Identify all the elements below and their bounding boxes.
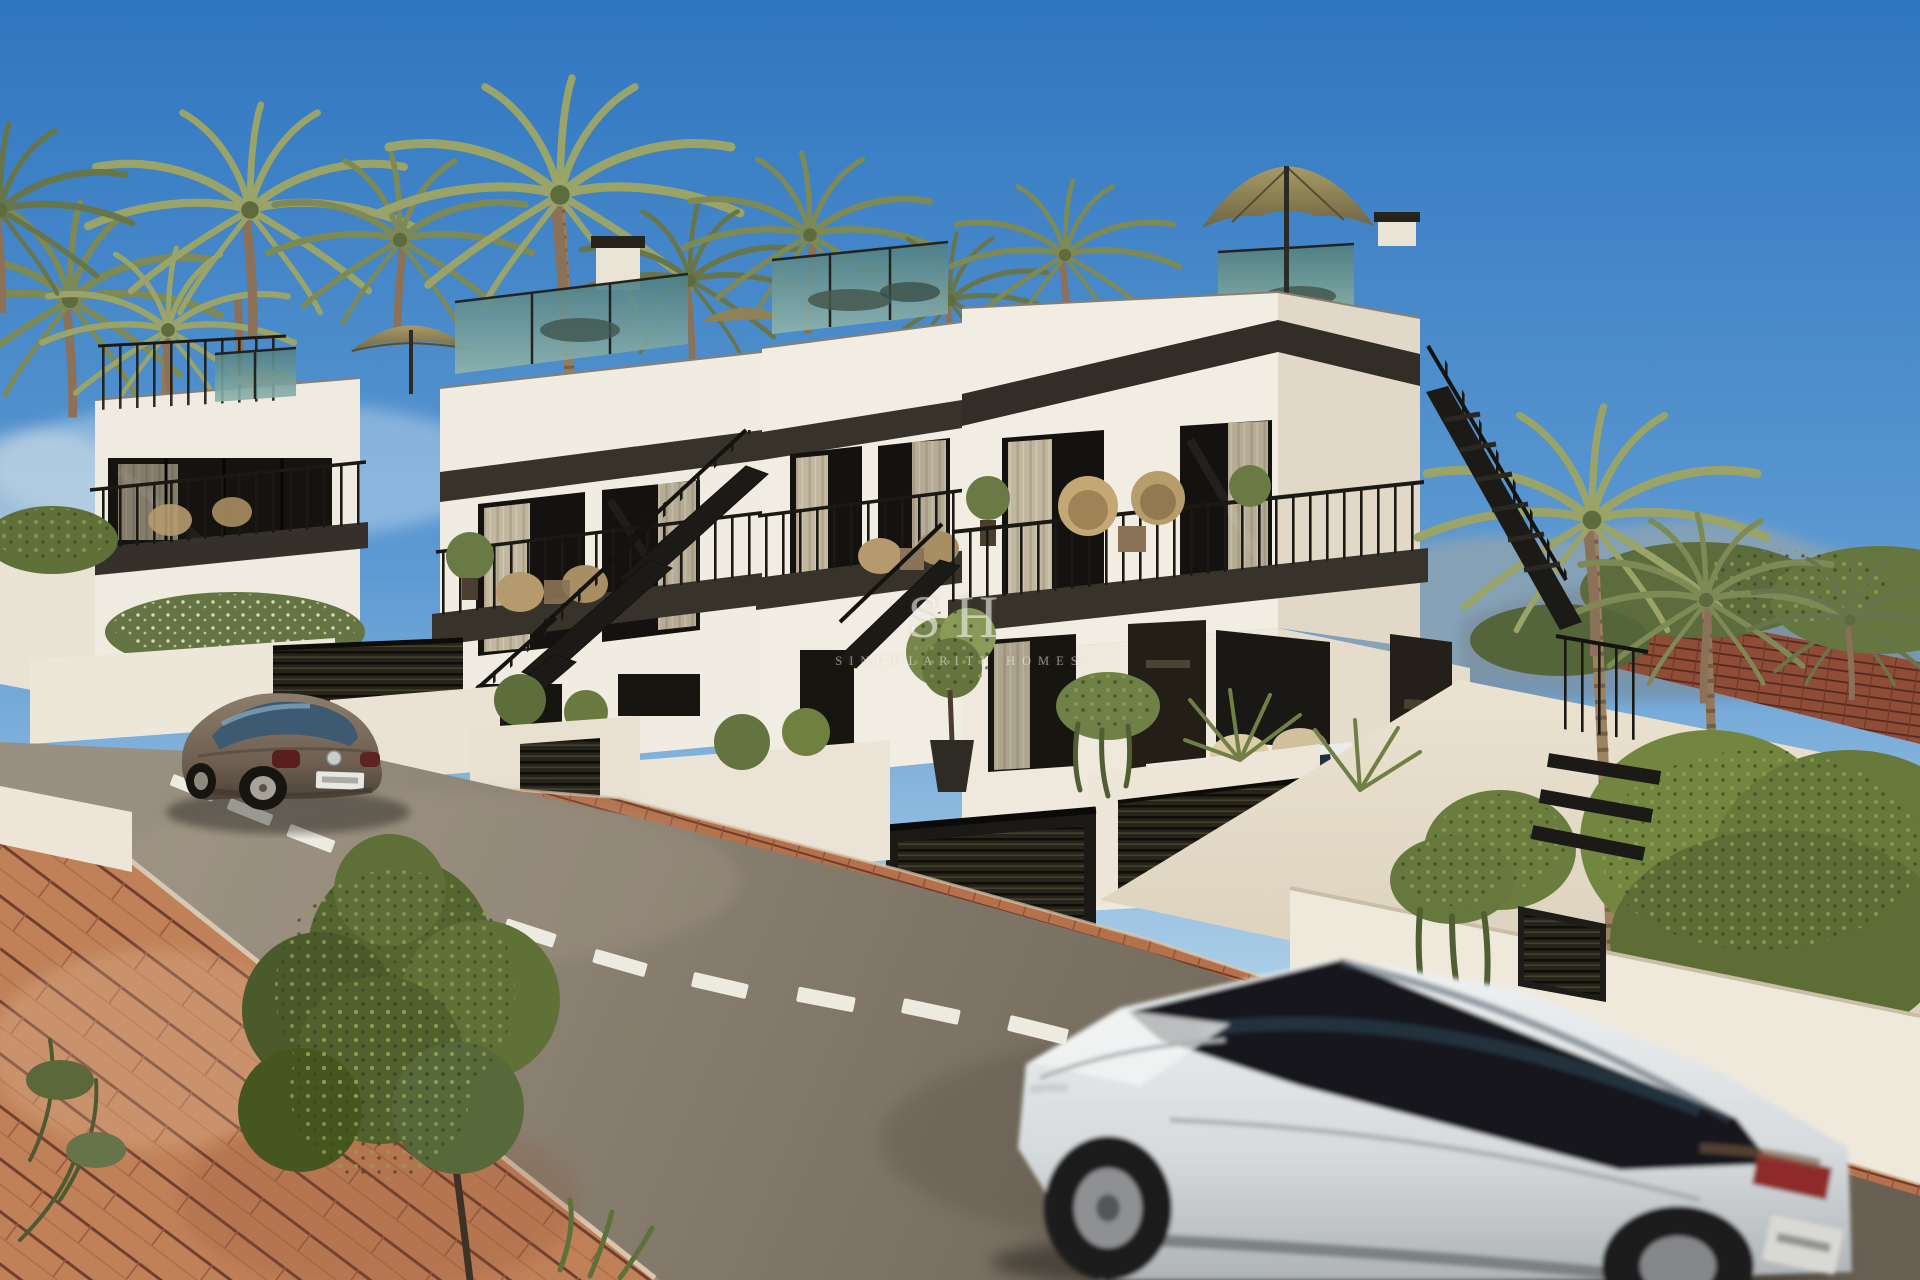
chimney <box>1378 218 1416 246</box>
scene-canvas <box>0 0 1920 1280</box>
trimmed-bush <box>494 674 546 726</box>
stair-landing-rail <box>1556 636 1648 742</box>
balcony-plant <box>966 476 1010 520</box>
roof-lounger <box>808 289 892 311</box>
trimmed-bush <box>714 714 770 770</box>
roof-lounger <box>880 282 940 302</box>
vw-badge <box>327 751 341 765</box>
property-render: SH SINGULARITY HOMES <box>0 0 1920 1280</box>
balcony-chair <box>148 504 192 536</box>
unit-b-ground-window <box>618 674 700 716</box>
beetle-taillight <box>272 750 300 768</box>
trimmed-bush <box>782 708 830 756</box>
suv-headlight <box>1030 1087 1068 1090</box>
beetle-taillight <box>360 752 380 767</box>
roof-lounger <box>540 318 620 342</box>
balcony-plant <box>1229 465 1271 507</box>
balcony-chair <box>212 497 252 527</box>
balcony-table <box>1118 526 1146 552</box>
